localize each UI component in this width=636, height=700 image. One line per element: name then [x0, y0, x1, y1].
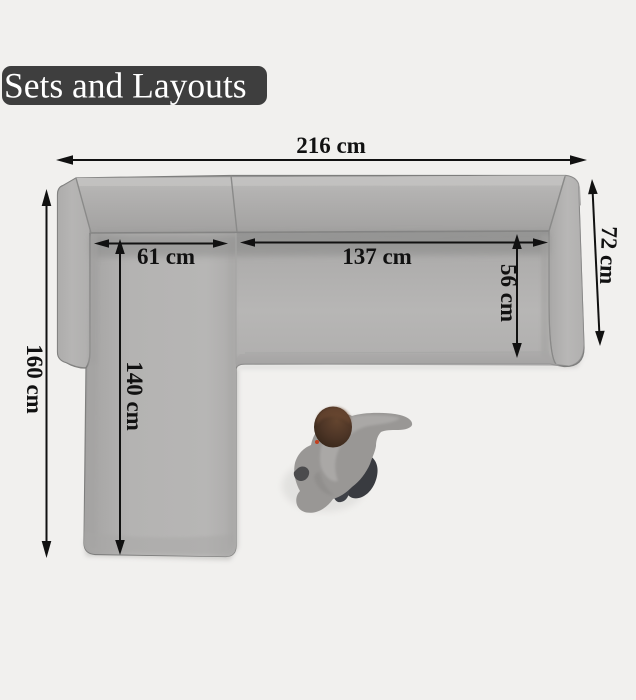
svg-text:137 cm: 137 cm [342, 244, 412, 269]
svg-text:216 cm: 216 cm [296, 133, 366, 158]
svg-text:160 cm: 160 cm [22, 344, 47, 414]
svg-text:140 cm: 140 cm [122, 361, 147, 431]
svg-text:Sets and Layouts: Sets and Layouts [4, 66, 247, 106]
svg-text:56 cm: 56 cm [496, 264, 521, 322]
svg-text:72 cm: 72 cm [595, 226, 622, 285]
svg-text:61 cm: 61 cm [137, 244, 195, 269]
